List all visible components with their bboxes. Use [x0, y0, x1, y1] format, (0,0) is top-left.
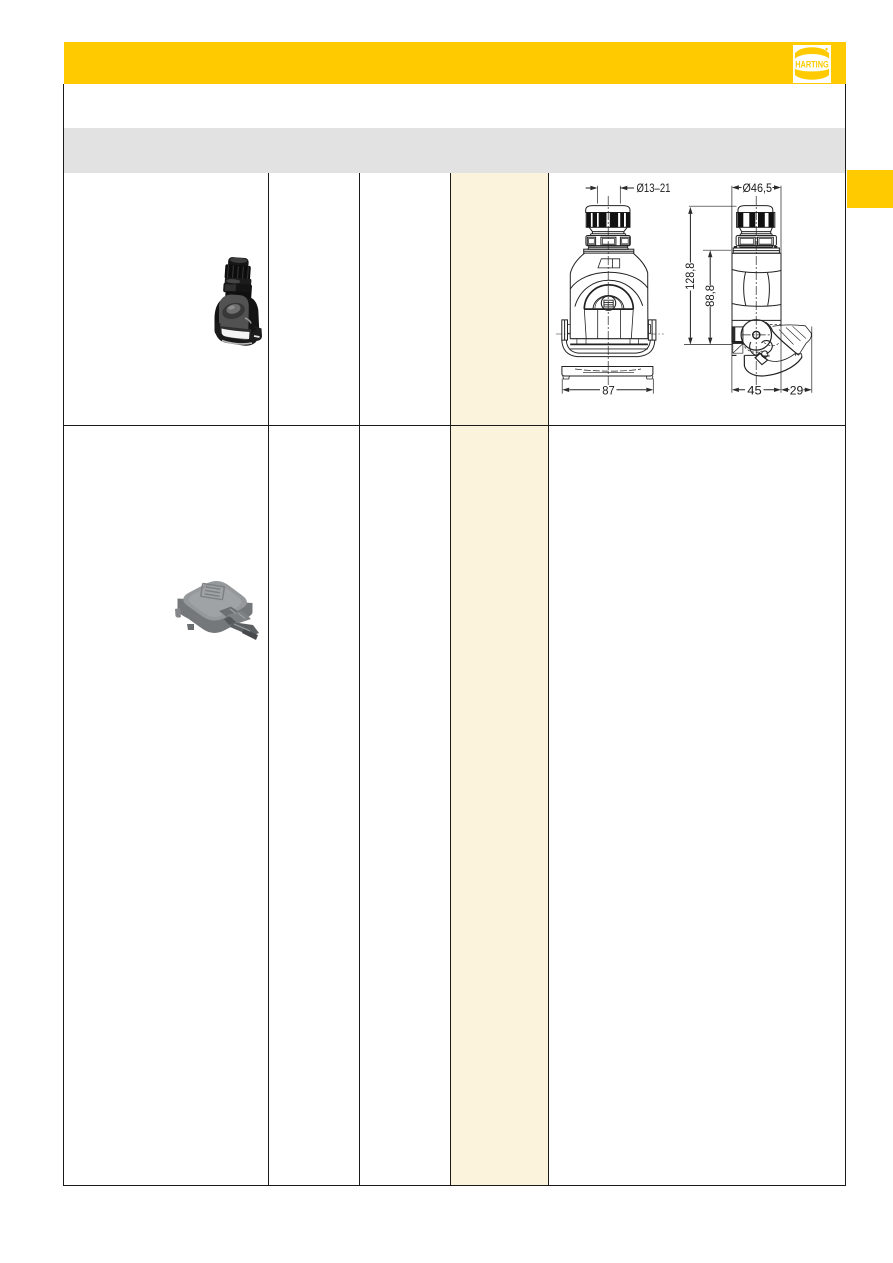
svg-text:87: 87: [602, 383, 615, 397]
svg-text:128,8: 128,8: [683, 263, 697, 290]
svg-text:Ø46,5: Ø46,5: [743, 181, 773, 195]
svg-text:45: 45: [747, 383, 762, 397]
svg-text:88,8: 88,8: [703, 285, 717, 307]
svg-text:Ø13–21: Ø13–21: [637, 181, 671, 195]
svg-text:29: 29: [790, 383, 804, 397]
svg-text:HARTING: HARTING: [795, 60, 829, 70]
